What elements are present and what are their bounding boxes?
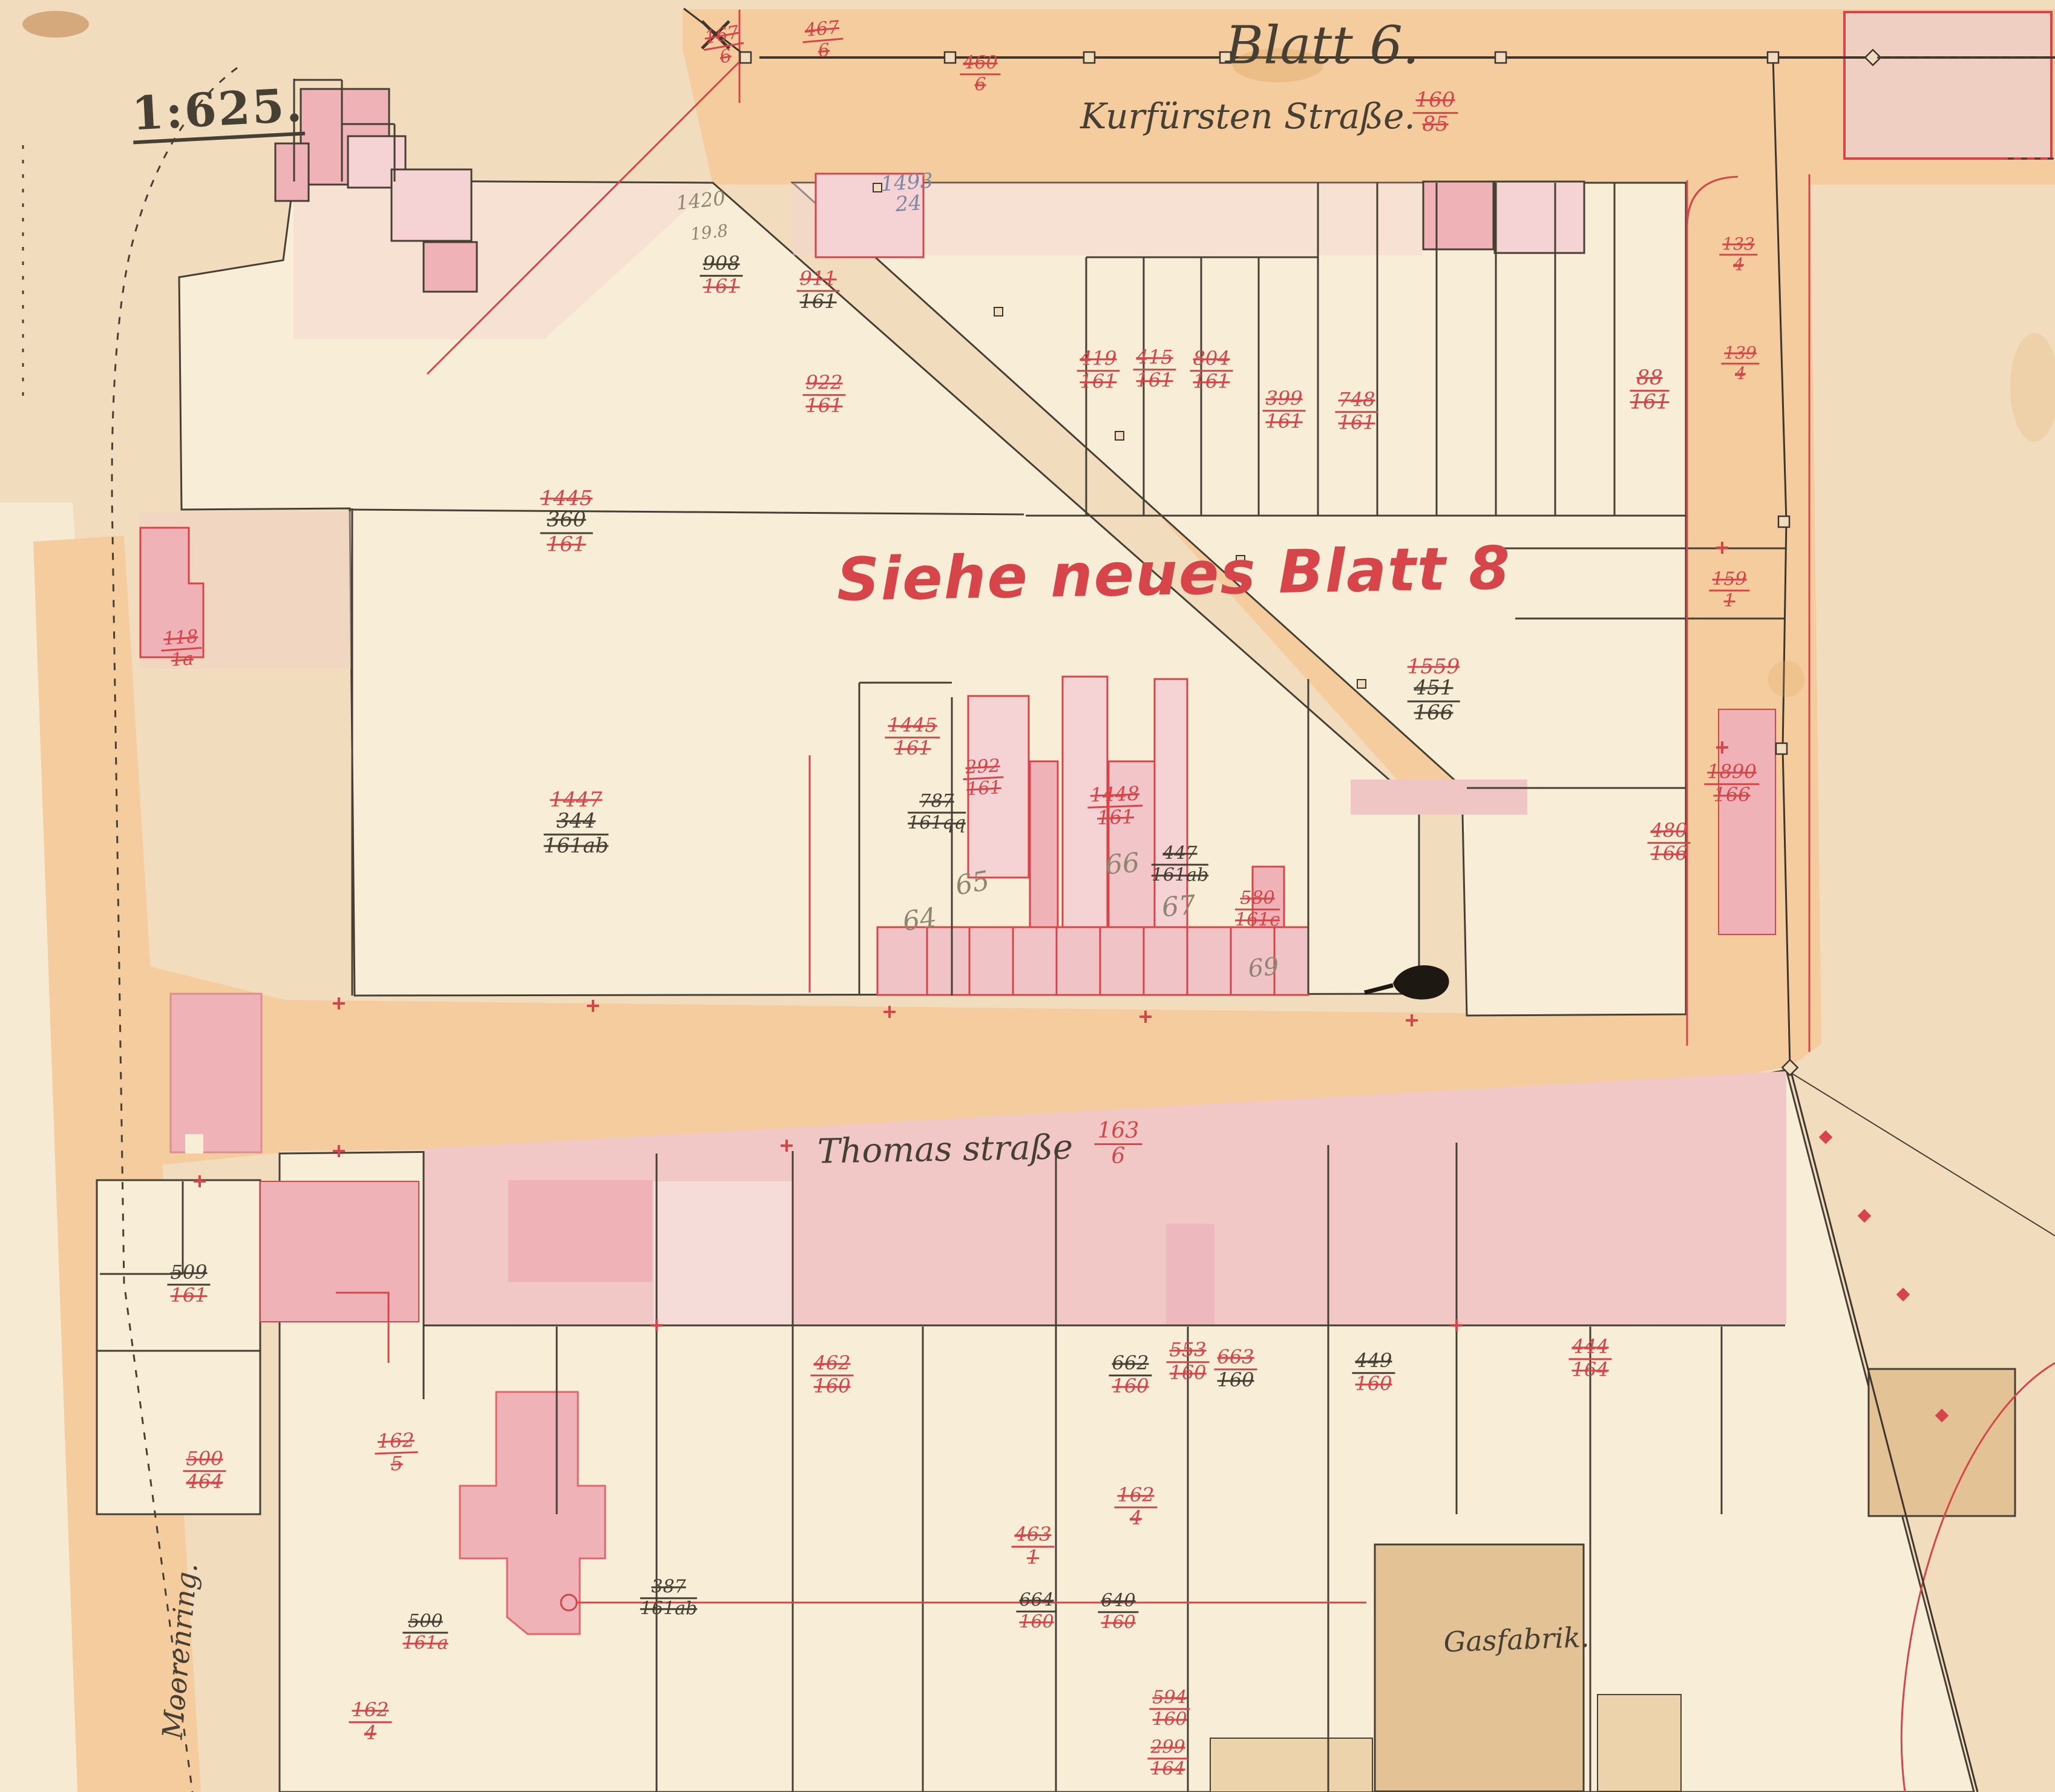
building: [1598, 1695, 1681, 1791]
building-gasworks: [1869, 1369, 2015, 1516]
building: [1719, 709, 1775, 934]
building: [1253, 867, 1284, 936]
building: [816, 174, 923, 257]
building: [275, 143, 309, 201]
building-gasworks: [1375, 1544, 1584, 1791]
building: [1495, 182, 1584, 253]
building-row: [877, 927, 1308, 995]
cadastral-map: Blatt 6.Kurfürsten Straße.160851:625.Sie…: [0, 0, 2055, 1792]
building: [1423, 182, 1493, 249]
building: [1210, 1738, 1372, 1792]
block-south-west: [97, 1180, 260, 1514]
map-drawing: [0, 0, 2055, 1792]
building-top-right-block: [1844, 12, 2051, 159]
building: [260, 1181, 419, 1322]
building: [392, 169, 471, 241]
building: [654, 1181, 793, 1327]
building: [508, 1180, 652, 1282]
building: [968, 696, 1029, 878]
building-large-left: [171, 994, 261, 1152]
building: [1063, 677, 1107, 956]
building: [1166, 1224, 1214, 1324]
building: [1155, 679, 1187, 956]
building: [424, 242, 477, 292]
